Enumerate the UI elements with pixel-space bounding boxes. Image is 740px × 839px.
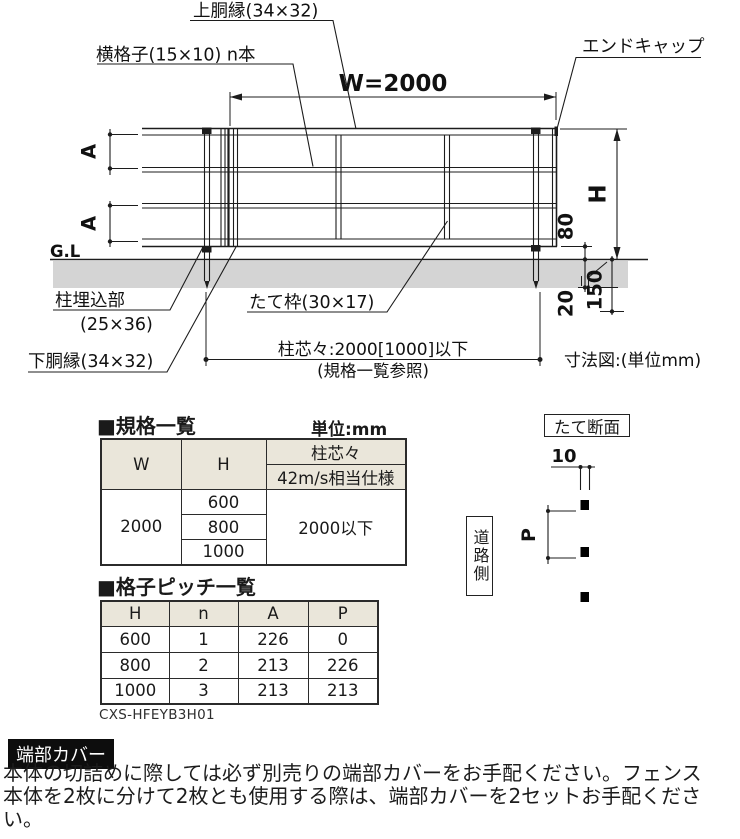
spec-col-w: W (101, 439, 181, 490)
post-embed-size-label: (25×36) (80, 315, 153, 335)
pitch-col-header: n (169, 601, 238, 626)
section-lattice-squares (581, 500, 590, 602)
section-view-drawing: 10 P (455, 440, 740, 630)
post-pitch-ref-label: (規格一覧参照) (317, 361, 429, 381)
pitch-cell: 3 (169, 678, 238, 704)
note-body: 本体の切詰めに際しては必ず別売りの端部カバーをお手配ください。フェンス本体を2枚… (3, 762, 703, 831)
spec-h-value: 600 (181, 490, 266, 515)
catalog-page: 上胴縁(34×32) 横格子(15×10) n本 エンドキャップ W=2000 … (0, 0, 740, 839)
spec-post-pitch-value: 2000以下 (266, 490, 406, 565)
pitch-cell: 226 (238, 626, 308, 652)
pitch-a1-label: A (78, 144, 101, 159)
pitch-cell: 226 (308, 652, 378, 678)
table-row: 1000 3 213 213 (101, 678, 378, 704)
pitch-cell: 213 (238, 652, 308, 678)
pitch-col-header: H (101, 601, 169, 626)
height-dim-label: H (586, 184, 612, 203)
dim-a-lines (108, 129, 138, 247)
ground-band (53, 261, 628, 288)
vertical-frame-label: たて枠(30×17) (249, 293, 374, 313)
pitch-table-title: ■格子ピッチ一覧 (97, 571, 256, 600)
pitch-cell: 1 (169, 626, 238, 652)
spec-h-value: 800 (181, 515, 266, 540)
ground-level-label: G.L (50, 242, 81, 261)
section-dim-p-label: P (518, 528, 540, 542)
road-side-label: 道路側 (466, 516, 493, 596)
section-dim-p-lines (546, 505, 576, 564)
drawing-caption: 寸法図:(単位mm) (564, 351, 701, 371)
post-cap (202, 246, 212, 253)
post-pitch-label: 柱芯々:2000[1000]以下 (278, 340, 469, 360)
spec-h-value: 1000 (181, 540, 266, 565)
dim-80-label: 80 (555, 213, 578, 240)
pitch-cell: 213 (238, 678, 308, 704)
spec-col-h: H (181, 439, 266, 490)
end-cap-label: エンドキャップ (582, 37, 705, 57)
table-row: 800 2 213 226 (101, 652, 378, 678)
dim-20-label: 20 (555, 290, 578, 317)
pitch-cell: 213 (308, 678, 378, 704)
spec-table: W H 柱芯々 42m/s相当仕様 2000 600 2000以下 800 10… (100, 438, 407, 566)
pitch-cell: 800 (101, 652, 169, 678)
post-cap (531, 245, 541, 252)
pitch-cell: 600 (101, 626, 169, 652)
pitch-cell: 2 (169, 652, 238, 678)
section-view-title: たて断面 (544, 414, 630, 437)
section-frame (581, 468, 590, 490)
spec-col-wind: 42m/s相当仕様 (266, 465, 406, 490)
bottom-rail-label: 下胴縁(34×32) (28, 352, 153, 372)
section-dim-10-label: 10 (551, 446, 576, 467)
pitch-col-header: A (238, 601, 308, 626)
table-row: 600 1 226 0 (101, 626, 378, 652)
lattice-label: 横格子(15×10) n本 (96, 46, 256, 66)
dimension-drawing: 上胴縁(34×32) 横格子(15×10) n本 エンドキャップ W=2000 … (0, 0, 740, 402)
end-cap-mark (555, 127, 559, 137)
spec-w-value: 2000 (101, 490, 181, 565)
product-code: CXS-HFEYB3H01 (99, 707, 215, 723)
spec-col-post-pitch: 柱芯々 (266, 439, 406, 465)
pitch-cell: 0 (308, 626, 378, 652)
post-cap (202, 128, 212, 135)
fence-verticals (202, 127, 558, 253)
pitch-table: H n A P 600 1 226 0 800 2 213 226 1000 3… (100, 600, 379, 705)
width-dim-label: W=2000 (339, 71, 448, 97)
dim-w-lines (230, 92, 556, 126)
spec-table-title: ■規格一覧 (97, 410, 196, 439)
post-cap (531, 128, 541, 135)
pitch-col-header: P (308, 601, 378, 626)
pitch-a2-label: A (78, 216, 101, 231)
top-rail-label: 上胴縁(34×32) (193, 2, 318, 22)
unit-label: 単位:mm (311, 415, 387, 440)
pitch-cell: 1000 (101, 678, 169, 704)
dim-150-label: 150 (584, 270, 607, 311)
post-embed-label: 柱埋込部 (55, 291, 125, 311)
